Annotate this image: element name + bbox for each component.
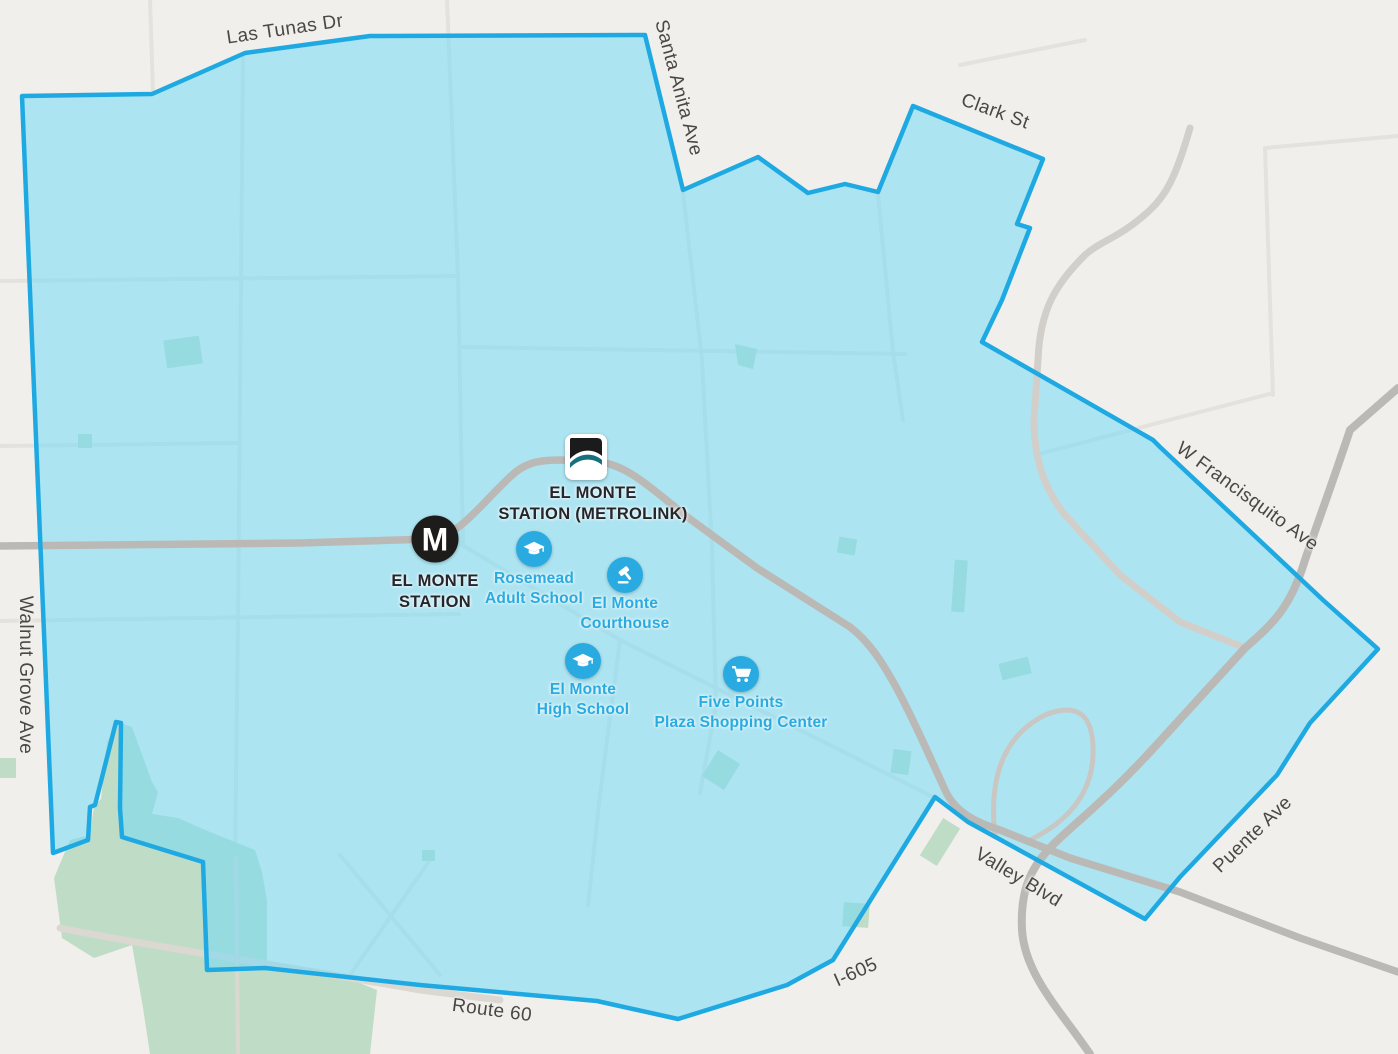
metrolink-station-label: EL MONTE STATION (METROLINK) [498,483,687,525]
poi-five-points-plaza-label: Five Points Plaza Shopping Center [655,693,828,733]
poi-el-monte-high-school[interactable] [565,643,601,679]
courthouse-gavel-icon [607,557,643,593]
metro-m-logo-icon: M [412,516,459,563]
metrolink-station-marker[interactable] [565,434,607,480]
shopping-cart-icon [723,656,759,692]
poi-rosemead-adult-school-label: Rosemead Adult School [485,569,583,609]
poi-el-monte-courthouse[interactable] [607,557,643,593]
poi-five-points-plaza[interactable] [723,656,759,692]
metrolink-logo-icon [565,434,607,480]
map-canvas[interactable]: Las Tunas Dr Santa Anita Ave Clark St W … [0,0,1398,1054]
map-graphics [0,0,1398,1054]
street-label-walnut-grove-ave: Walnut Grove Ave [14,596,36,754]
poi-el-monte-courthouse-label: El Monte Courthouse [581,594,670,634]
el-monte-station-label: EL MONTE STATION [391,571,478,613]
school-icon [565,643,601,679]
park-small [0,758,16,778]
poi-el-monte-high-school-label: El Monte High School [537,680,630,720]
el-monte-station-marker[interactable]: M [412,516,459,563]
school-icon [516,531,552,567]
poi-rosemead-adult-school[interactable] [516,531,552,567]
